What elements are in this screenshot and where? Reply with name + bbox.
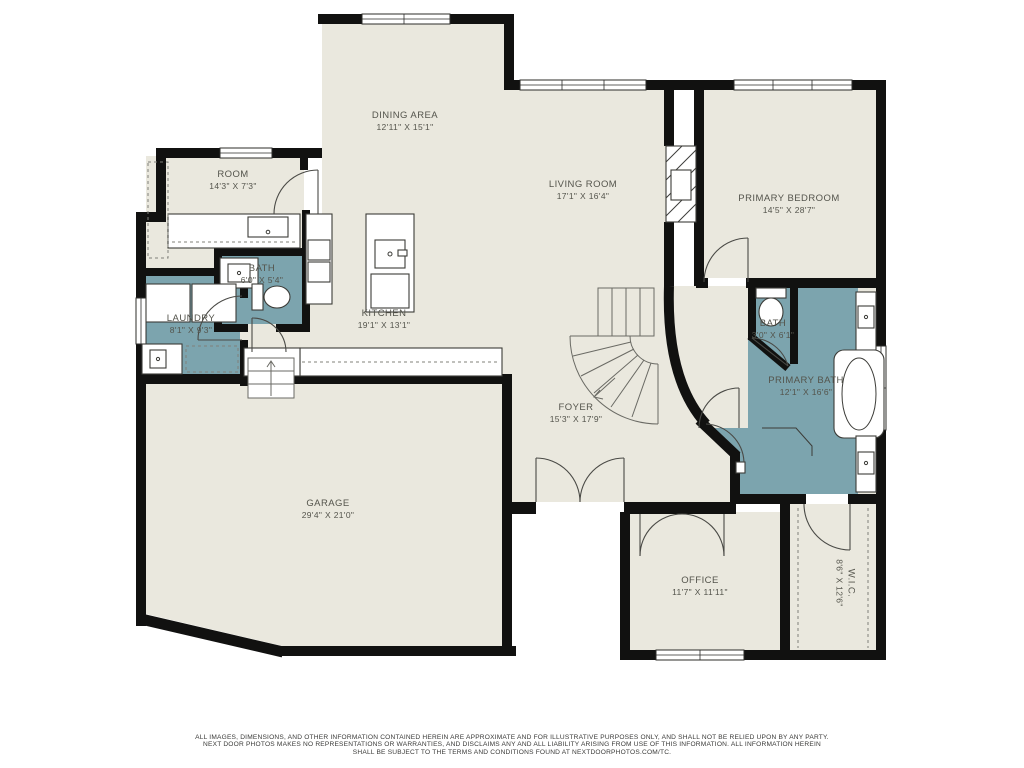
toilet-tank xyxy=(252,284,263,310)
window xyxy=(136,298,146,344)
washer xyxy=(146,284,190,322)
dryer xyxy=(192,284,236,322)
toilet-bowl xyxy=(759,298,783,326)
window xyxy=(656,650,744,660)
toilet-bowl xyxy=(264,286,290,308)
floor-plan: DINING AREA 12'11" X 15'1" ROOM 14'3" X … xyxy=(0,0,1024,768)
window xyxy=(734,80,852,90)
window xyxy=(362,14,450,24)
window xyxy=(520,80,646,90)
toilet-tank xyxy=(756,288,786,298)
disclaimer-line-1: ALL IMAGES, DIMENSIONS, AND OTHER INFORM… xyxy=(0,734,1024,741)
oven xyxy=(308,262,330,282)
disclaimer-line-2: NEXT DOOR PHOTOS MAKES NO REPRESENTATION… xyxy=(0,741,1024,748)
toilet-paper-holder xyxy=(736,462,745,473)
range xyxy=(308,240,330,260)
island-sink xyxy=(371,274,409,308)
disclaimer-line-3: SHALL BE SUBJECT TO THE TERMS AND CONDIT… xyxy=(0,749,1024,756)
fireplace xyxy=(666,146,696,222)
garage-steps xyxy=(248,358,294,398)
window xyxy=(220,148,272,158)
floor-plan-drawing xyxy=(0,0,1024,768)
disclaimer: ALL IMAGES, DIMENSIONS, AND OTHER INFORM… xyxy=(0,734,1024,756)
